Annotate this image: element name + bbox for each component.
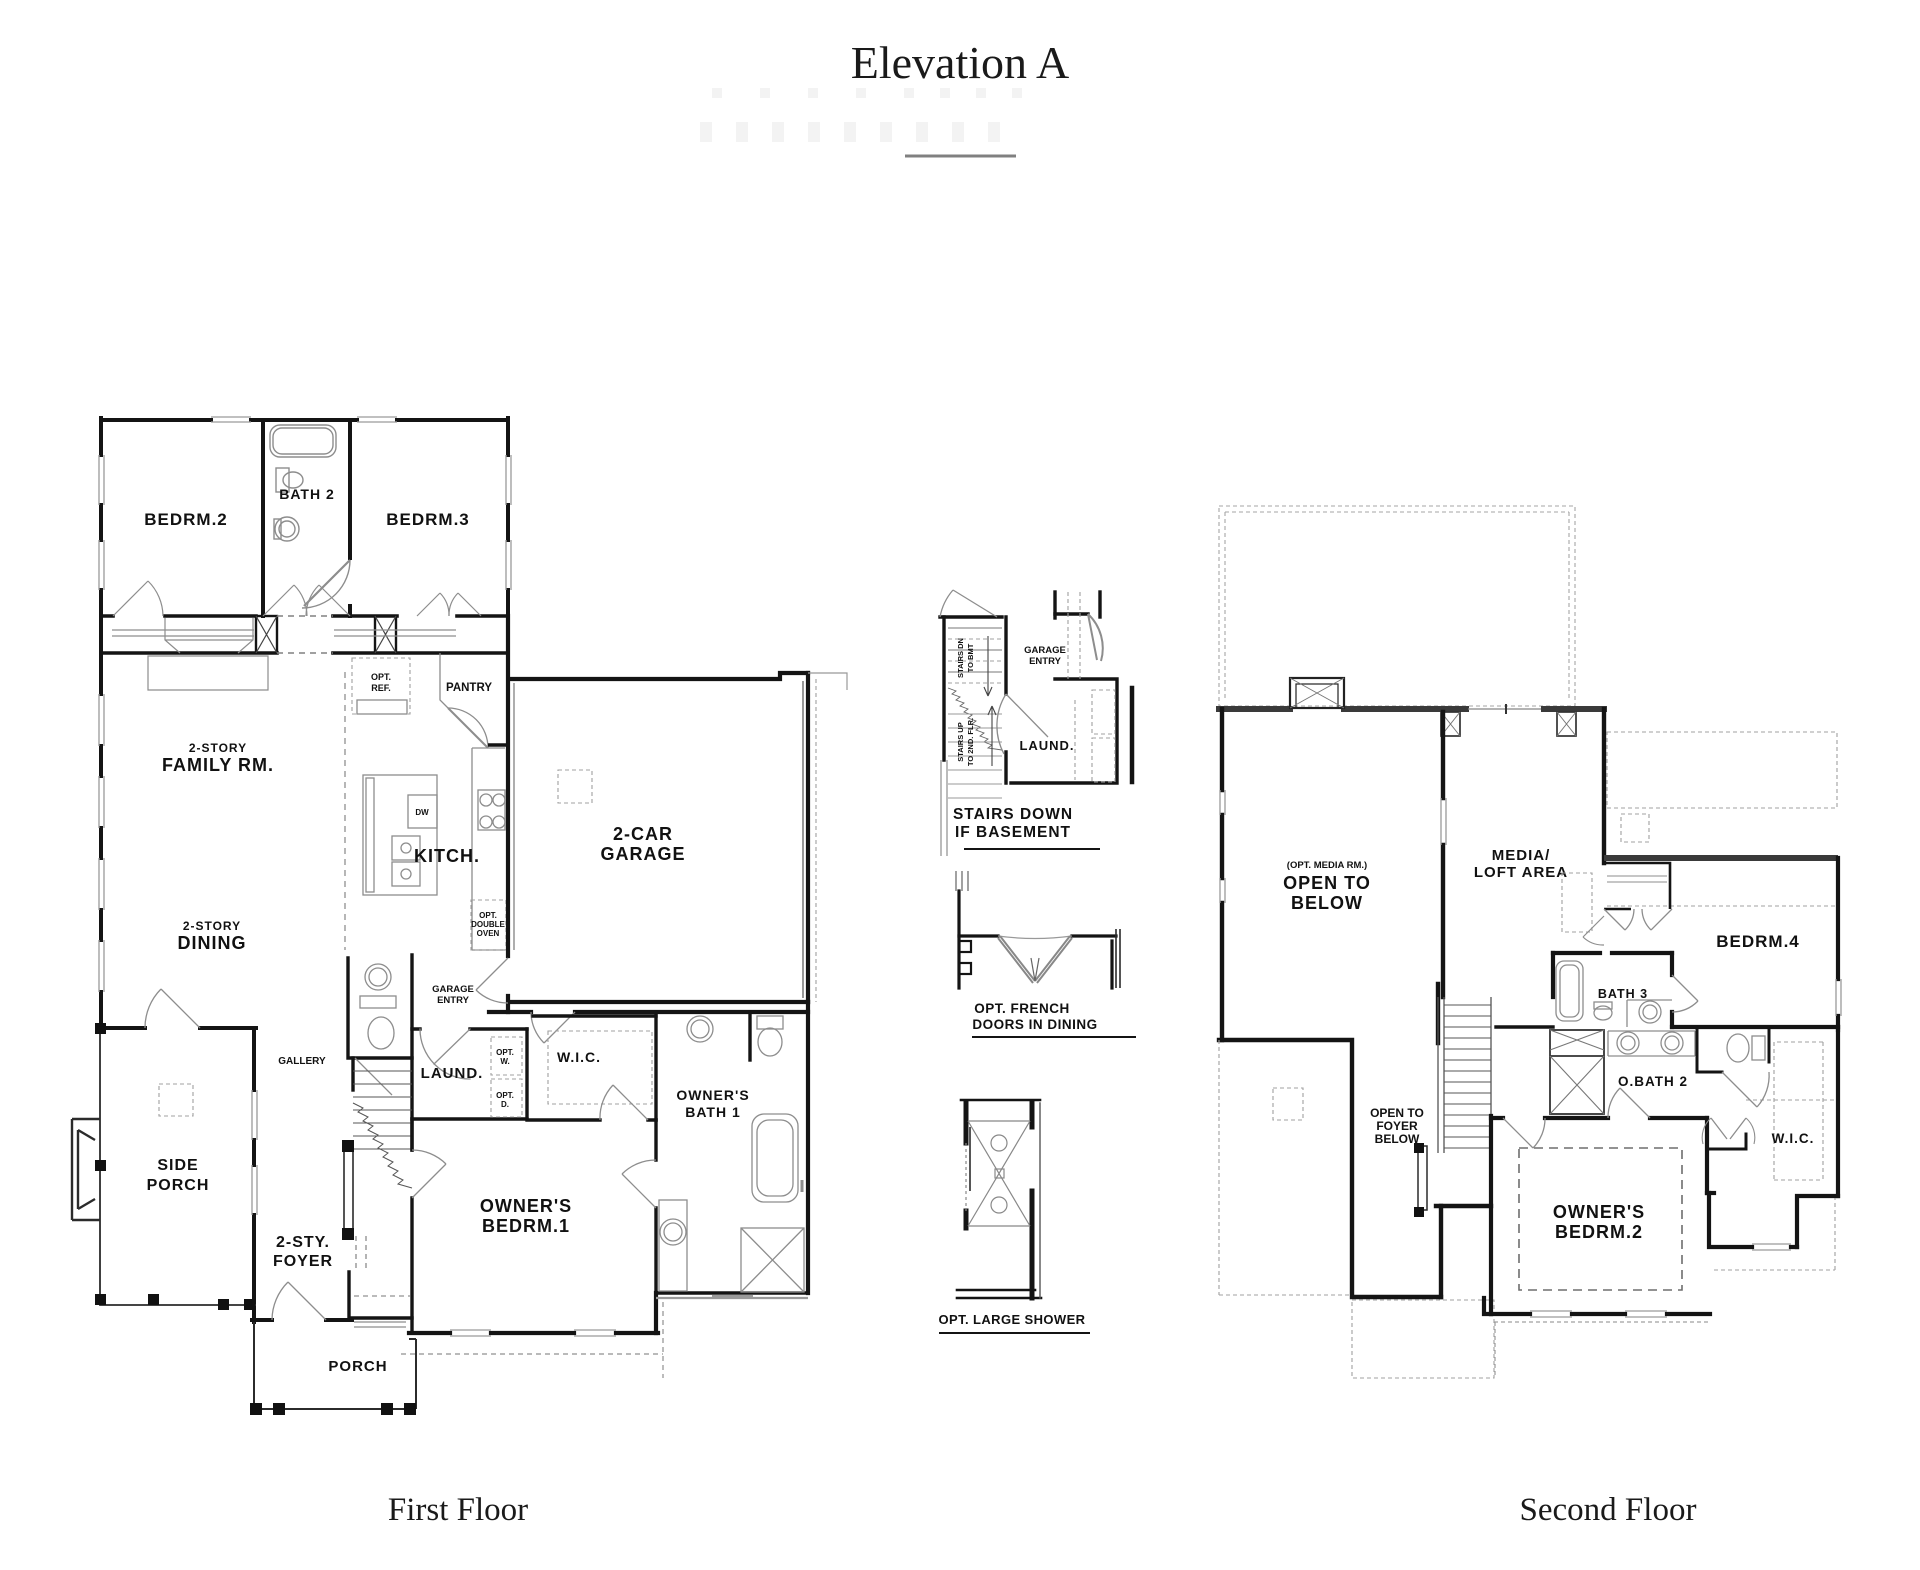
svg-text:OWNER'S: OWNER'S [1553, 1202, 1645, 1222]
svg-text:W.: W. [500, 1057, 509, 1066]
svg-text:OPEN TO: OPEN TO [1283, 873, 1371, 893]
svg-text:TO 2ND. FLR.: TO 2ND. FLR. [966, 718, 975, 766]
svg-text:DW: DW [415, 808, 429, 817]
svg-text:ENTRY: ENTRY [437, 995, 470, 1006]
svg-text:GARAGE: GARAGE [1024, 645, 1066, 656]
svg-text:BELOW: BELOW [1375, 1132, 1420, 1146]
svg-text:2-STY.: 2-STY. [276, 1234, 330, 1251]
svg-text:OPT. FRENCH: OPT. FRENCH [974, 1001, 1070, 1016]
svg-text:Elevation A: Elevation A [851, 37, 1069, 88]
svg-text:OPT.: OPT. [496, 1091, 514, 1100]
svg-text:GARAGE: GARAGE [600, 844, 685, 864]
svg-text:DOORS IN DINING: DOORS IN DINING [972, 1017, 1097, 1032]
svg-text:W.I.C.: W.I.C. [1772, 1131, 1815, 1146]
svg-text:O.BATH 2: O.BATH 2 [1618, 1074, 1688, 1089]
svg-text:W.I.C.: W.I.C. [557, 1049, 601, 1065]
svg-text:2-STORY: 2-STORY [189, 741, 247, 755]
svg-text:SIDE: SIDE [157, 1157, 198, 1174]
svg-text:BEDRM.2: BEDRM.2 [144, 510, 228, 529]
svg-text:LAUND.: LAUND. [421, 1065, 484, 1082]
svg-text:OPT.: OPT. [479, 911, 497, 920]
svg-text:TO BMT: TO BMT [966, 643, 975, 672]
svg-text:Second Floor: Second Floor [1520, 1492, 1697, 1528]
svg-text:D.: D. [501, 1100, 509, 1109]
svg-text:BELOW: BELOW [1291, 893, 1363, 913]
svg-text:BEDRM.3: BEDRM.3 [386, 510, 470, 529]
svg-text:LAUND.: LAUND. [1019, 738, 1074, 753]
svg-text:(OPT. MEDIA RM.): (OPT. MEDIA RM.) [1287, 860, 1367, 871]
svg-text:OPEN TO: OPEN TO [1370, 1106, 1424, 1120]
svg-text:2-CAR: 2-CAR [613, 824, 673, 844]
svg-text:GALLERY: GALLERY [278, 1056, 326, 1067]
svg-text:KITCH.: KITCH. [414, 846, 480, 866]
svg-text:STAIRS DOWN: STAIRS DOWN [953, 806, 1073, 823]
svg-text:DINING: DINING [178, 933, 247, 953]
svg-text:DOUBLE: DOUBLE [471, 920, 505, 929]
svg-text:OWNER'S: OWNER'S [676, 1087, 749, 1103]
svg-text:BEDRM.4: BEDRM.4 [1716, 932, 1800, 951]
svg-text:OPT.: OPT. [371, 672, 391, 682]
svg-text:2-STORY: 2-STORY [183, 919, 241, 933]
svg-text:ENTRY: ENTRY [1029, 656, 1062, 667]
svg-text:FAMILY RM.: FAMILY RM. [162, 755, 274, 775]
svg-text:FOYER: FOYER [1376, 1119, 1418, 1133]
svg-text:LOFT AREA: LOFT AREA [1474, 864, 1568, 881]
svg-text:OWNER'S: OWNER'S [480, 1196, 572, 1216]
svg-text:MEDIA/: MEDIA/ [1492, 847, 1551, 864]
svg-text:First Floor: First Floor [388, 1492, 528, 1528]
svg-text:STAIRS UP: STAIRS UP [956, 722, 965, 761]
svg-text:PANTRY: PANTRY [446, 682, 492, 694]
svg-text:PORCH: PORCH [147, 1177, 210, 1194]
svg-text:IF BASEMENT: IF BASEMENT [955, 824, 1071, 841]
svg-text:BATH 1: BATH 1 [685, 1104, 741, 1120]
svg-text:OPT.: OPT. [496, 1048, 514, 1057]
svg-text:BEDRM.1: BEDRM.1 [482, 1216, 570, 1236]
svg-text:REF.: REF. [371, 683, 391, 693]
svg-text:FOYER: FOYER [273, 1253, 333, 1270]
svg-text:BATH 2: BATH 2 [279, 486, 335, 502]
svg-text:BATH 3: BATH 3 [1598, 987, 1648, 1001]
svg-text:OVEN: OVEN [477, 929, 500, 938]
svg-text:GARAGE: GARAGE [432, 984, 474, 995]
svg-text:PORCH: PORCH [328, 1358, 387, 1375]
svg-text:OPT. LARGE SHOWER: OPT. LARGE SHOWER [939, 1312, 1086, 1327]
svg-text:STAIRS DN: STAIRS DN [956, 638, 965, 678]
svg-text:BEDRM.2: BEDRM.2 [1555, 1222, 1643, 1242]
